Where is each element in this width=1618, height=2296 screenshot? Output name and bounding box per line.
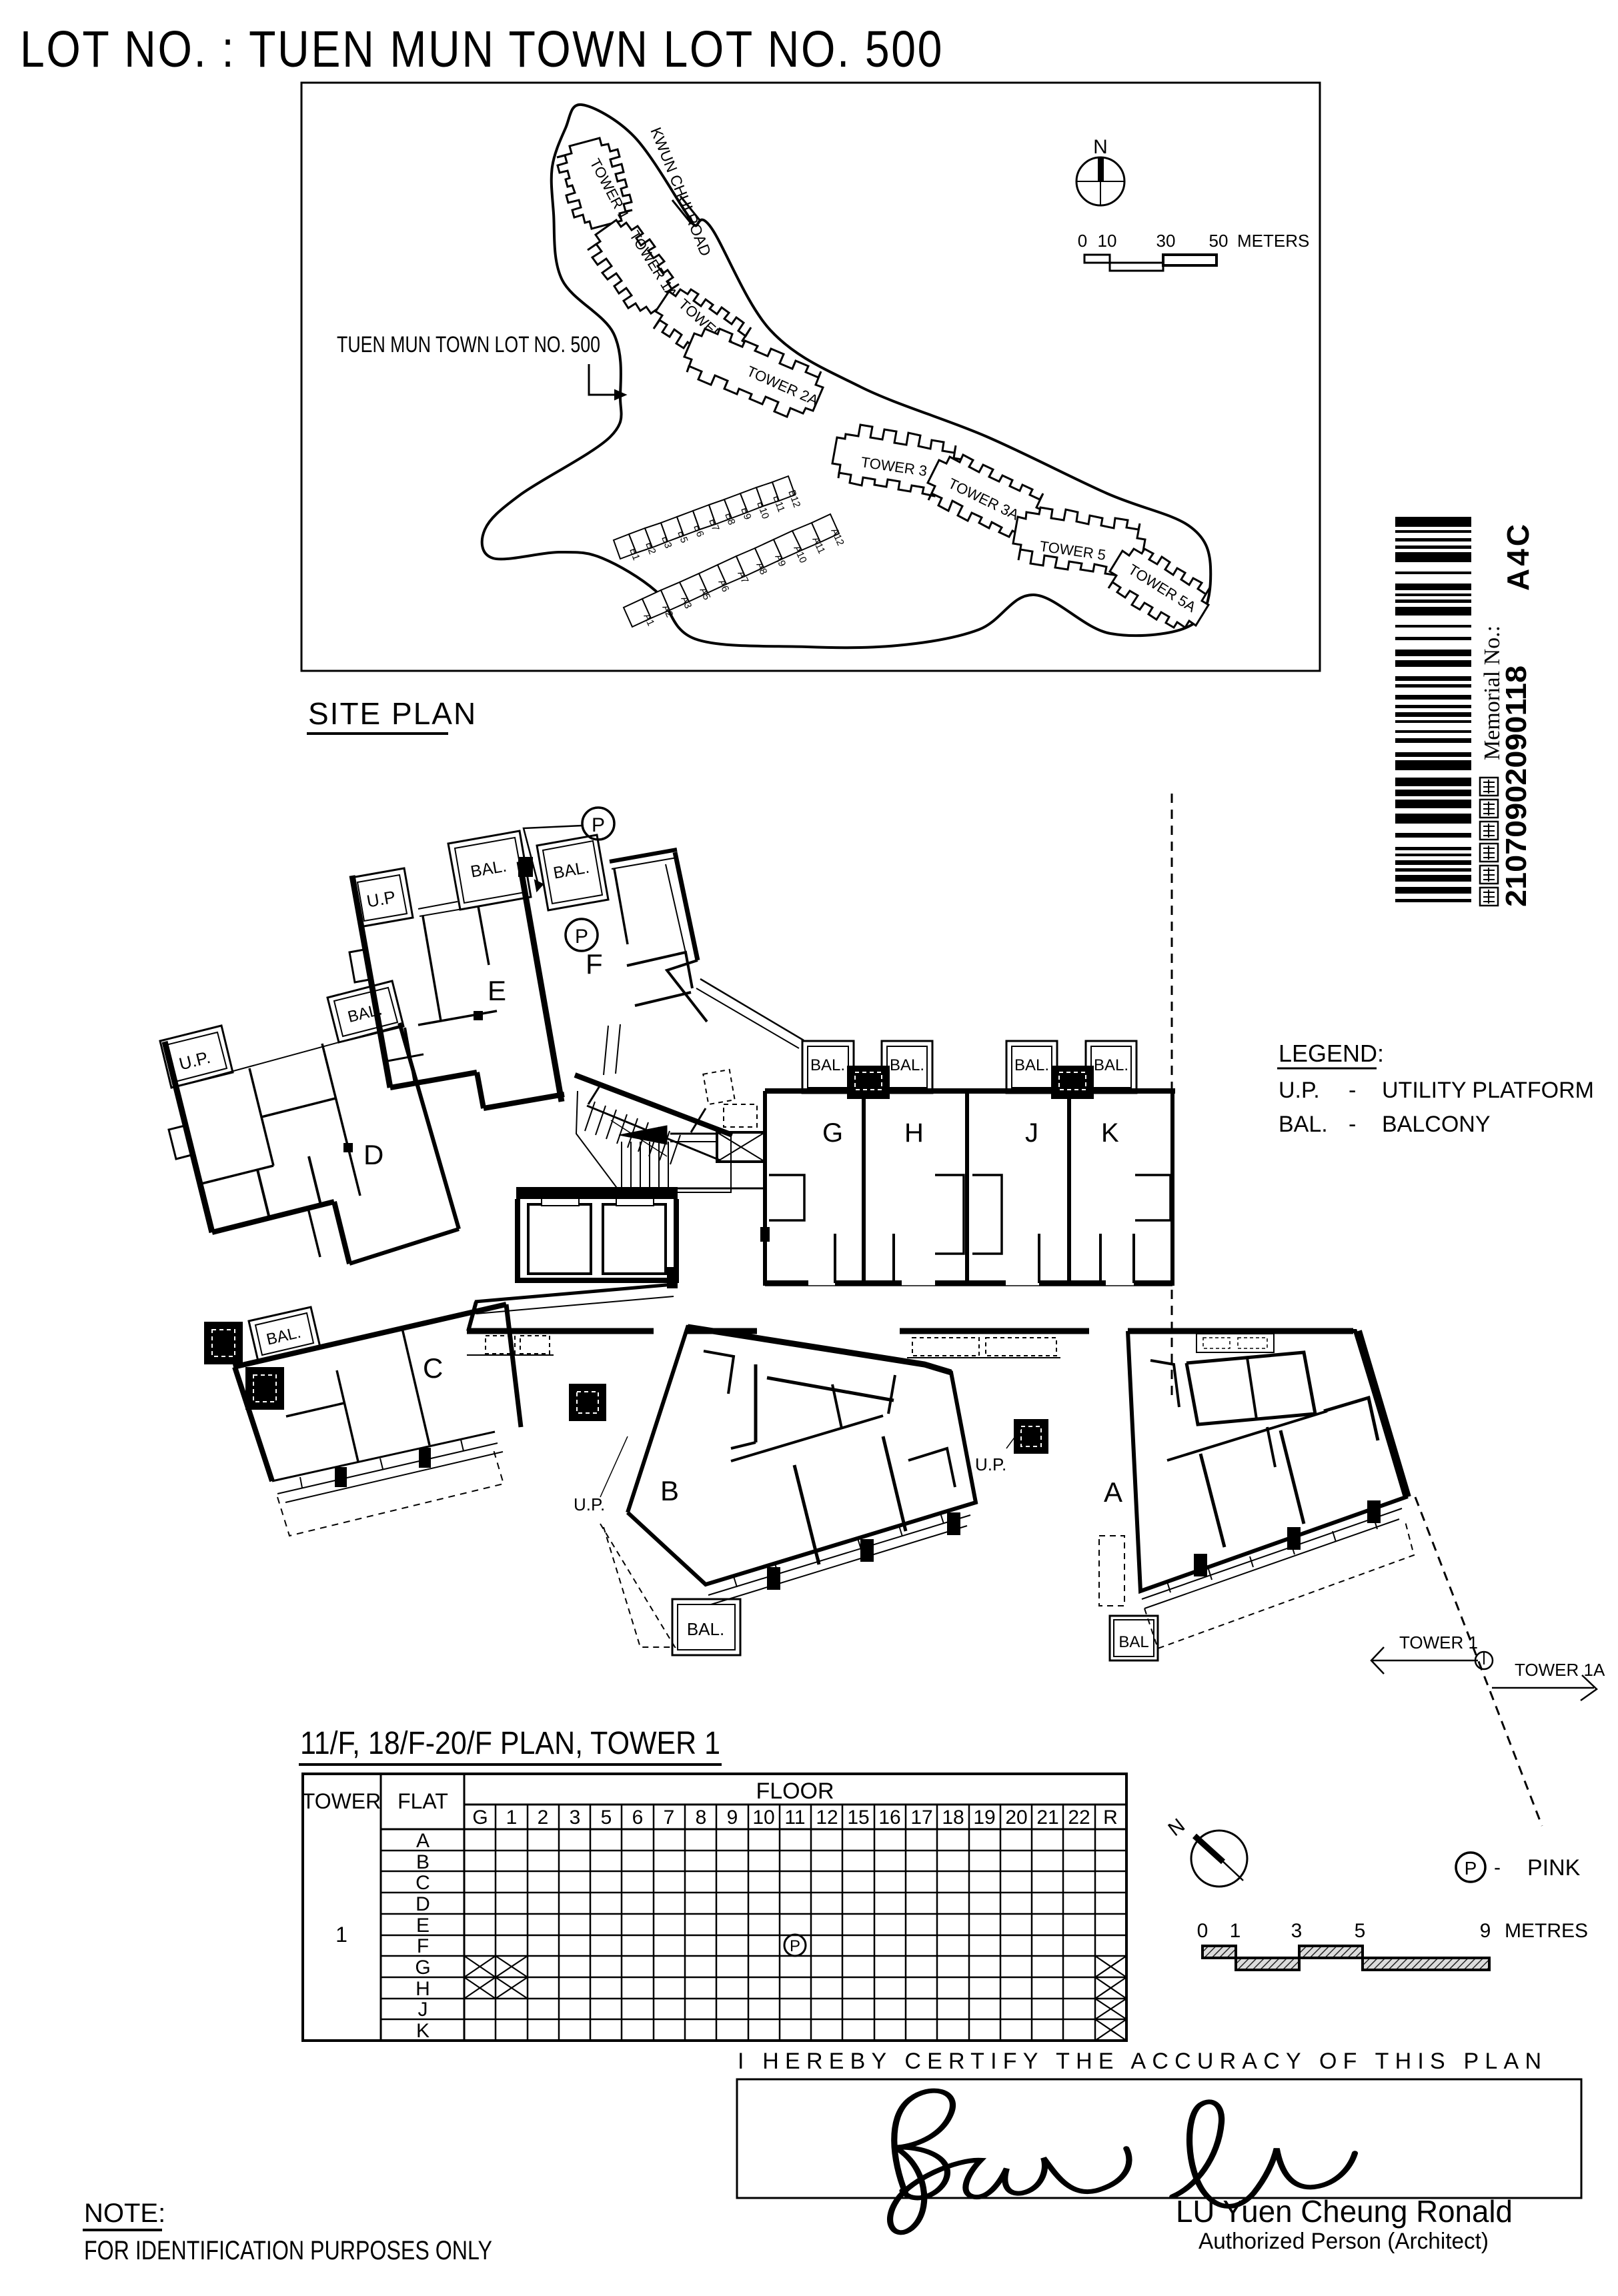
- svg-text:C: C: [416, 1872, 430, 1894]
- svg-text:LU Yuen Cheung Ronald: LU Yuen Cheung Ronald: [1176, 2194, 1513, 2229]
- svg-text:18: 18: [942, 1807, 964, 1829]
- svg-text:C: C: [423, 1352, 443, 1384]
- svg-text:6: 6: [632, 1807, 644, 1829]
- svg-text:J: J: [1025, 1118, 1038, 1148]
- svg-text:30: 30: [1156, 231, 1176, 251]
- svg-text:0: 0: [1197, 1920, 1208, 1942]
- svg-text:BAL: BAL: [1118, 1633, 1148, 1651]
- svg-text:Authorized Person (Architect): Authorized Person (Architect): [1198, 2229, 1489, 2254]
- svg-text:TOWER 1A: TOWER 1A: [1515, 1660, 1605, 1680]
- svg-text:E: E: [488, 975, 506, 1006]
- svg-text:BAL.: BAL.: [810, 1056, 845, 1074]
- svg-text:3: 3: [1291, 1920, 1303, 1942]
- svg-text:A: A: [416, 1830, 430, 1852]
- svg-text:SITE PLAN: SITE PLAN: [308, 696, 477, 731]
- svg-text:K: K: [416, 2020, 430, 2042]
- svg-text:G: G: [415, 1957, 430, 1979]
- svg-text:16: 16: [878, 1807, 900, 1829]
- svg-text:20: 20: [1005, 1807, 1027, 1829]
- svg-text:BAL.: BAL.: [1094, 1056, 1128, 1074]
- svg-text:B: B: [416, 1851, 430, 1873]
- svg-text:-: -: [1349, 1078, 1356, 1103]
- svg-text:3: 3: [570, 1807, 581, 1829]
- svg-text:P: P: [1465, 1858, 1477, 1879]
- svg-text:17: 17: [910, 1807, 932, 1829]
- svg-text:11/F, 18/F-20/F PLAN, TOWER 1: 11/F, 18/F-20/F PLAN, TOWER 1: [300, 1726, 720, 1761]
- svg-text:FLAT: FLAT: [397, 1789, 448, 1813]
- svg-text:15: 15: [847, 1807, 869, 1829]
- svg-text:12: 12: [816, 1807, 838, 1829]
- svg-text:F: F: [586, 948, 603, 980]
- svg-text:FLOOR: FLOOR: [756, 1779, 834, 1804]
- svg-text:D: D: [416, 1893, 430, 1915]
- svg-text:0: 0: [1078, 231, 1087, 251]
- svg-text:1: 1: [506, 1807, 518, 1829]
- svg-text:50: 50: [1209, 231, 1229, 251]
- svg-text:K: K: [1101, 1118, 1119, 1148]
- svg-text:U.P.: U.P.: [975, 1454, 1006, 1474]
- svg-text:5: 5: [1355, 1920, 1366, 1942]
- svg-text:8: 8: [696, 1807, 707, 1829]
- svg-text:P: P: [575, 926, 588, 948]
- svg-text:LOT NO. : TUEN MUN TOWN LOT: LOT NO. : TUEN MUN TOWN LOT NO. 500: [20, 21, 944, 78]
- svg-text:21070902090118: 21070902090118: [1500, 666, 1533, 907]
- svg-text:TOWER: TOWER: [302, 1789, 381, 1813]
- svg-text:LEGEND:: LEGEND:: [1279, 1040, 1384, 1067]
- svg-text:A4C: A4C: [1501, 521, 1535, 591]
- svg-text:P: P: [592, 814, 605, 836]
- svg-text:BAL.: BAL.: [1014, 1056, 1049, 1074]
- svg-text:F: F: [417, 1935, 429, 1957]
- svg-text:METERS: METERS: [1237, 231, 1309, 251]
- svg-text:11: 11: [784, 1807, 805, 1829]
- svg-text:-: -: [1349, 1112, 1356, 1137]
- svg-text:21: 21: [1036, 1807, 1058, 1829]
- svg-text:10: 10: [752, 1807, 774, 1829]
- svg-text:9: 9: [727, 1807, 738, 1829]
- svg-text:BAL.: BAL.: [687, 1619, 724, 1639]
- svg-text:1: 1: [335, 1923, 347, 1947]
- svg-text:METRES: METRES: [1505, 1920, 1588, 1942]
- svg-text:BAL.: BAL.: [890, 1056, 924, 1074]
- svg-text:P: P: [790, 1937, 800, 1955]
- svg-text:22: 22: [1068, 1807, 1090, 1829]
- svg-text:E: E: [416, 1915, 430, 1937]
- svg-text:J: J: [418, 1999, 428, 2021]
- svg-text:1: 1: [1230, 1920, 1241, 1942]
- svg-text:I HEREBY CERTIFY THE ACCURACY: I HEREBY CERTIFY THE ACCURACY OF THIS PL…: [738, 2049, 1541, 2074]
- svg-text:D: D: [363, 1139, 383, 1170]
- svg-text:9: 9: [1480, 1920, 1491, 1942]
- svg-text:PINK: PINK: [1527, 1855, 1581, 1881]
- svg-text:G: G: [472, 1807, 488, 1829]
- svg-text:7: 7: [664, 1807, 675, 1829]
- svg-text:A: A: [1104, 1476, 1122, 1508]
- svg-text:N: N: [1093, 136, 1108, 158]
- svg-text:G: G: [822, 1118, 843, 1148]
- svg-text:H: H: [904, 1118, 924, 1148]
- svg-text:U.P.: U.P.: [1279, 1078, 1320, 1103]
- svg-text:TUEN MUN TOWN LOT NO. 500: TUEN MUN TOWN LOT NO. 500: [337, 332, 600, 357]
- svg-text:R: R: [1103, 1807, 1118, 1829]
- svg-text:UTILITY PLATFORM: UTILITY PLATFORM: [1382, 1078, 1594, 1103]
- svg-text:5: 5: [601, 1807, 612, 1829]
- svg-text:-: -: [1494, 1857, 1501, 1879]
- svg-text:H: H: [416, 1978, 430, 2000]
- svg-text:BAL.: BAL.: [1279, 1112, 1328, 1137]
- svg-text:FOR IDENTIFICATION PURPOSES ON: FOR IDENTIFICATION PURPOSES ONLY: [84, 2236, 492, 2265]
- svg-text:2: 2: [538, 1807, 549, 1829]
- svg-text:B: B: [660, 1475, 679, 1506]
- svg-text:U.P.: U.P.: [574, 1494, 605, 1514]
- svg-text:10: 10: [1098, 231, 1117, 251]
- svg-text:NOTE:: NOTE:: [84, 2199, 165, 2228]
- svg-text:19: 19: [973, 1807, 995, 1829]
- svg-text:BALCONY: BALCONY: [1382, 1112, 1491, 1137]
- svg-text:TOWER 1: TOWER 1: [1399, 1632, 1478, 1652]
